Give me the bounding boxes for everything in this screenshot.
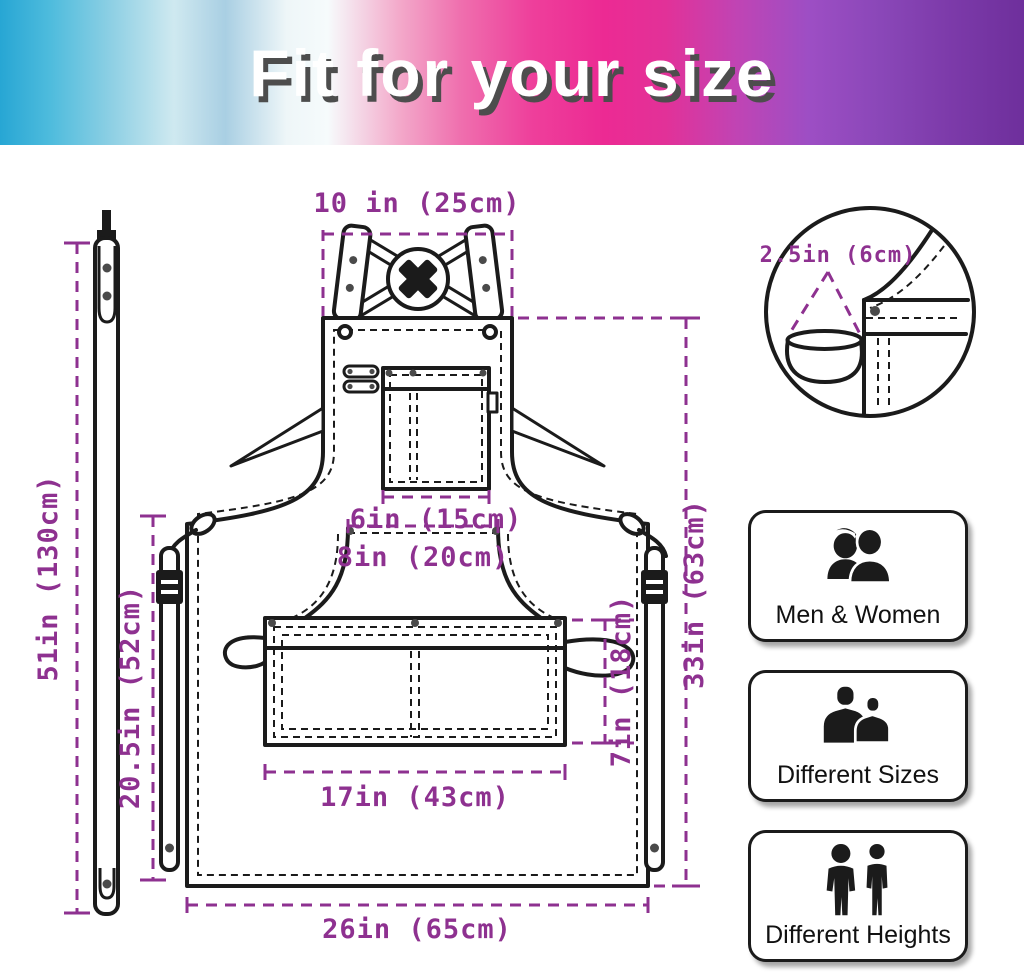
dim-bottom-width — [187, 897, 648, 913]
different-heights-icon — [810, 833, 906, 921]
left-strap-tail — [231, 408, 323, 466]
left-towel-loop — [225, 637, 265, 667]
right-strap-tail — [512, 408, 604, 466]
shoulder-cross-straps — [333, 225, 503, 322]
dim-center-panel-label: 8in (20cm) — [337, 542, 510, 573]
loop-detail-circle — [766, 208, 974, 416]
feature-badge-different-heights: Different Heights — [748, 830, 968, 962]
dim-waist-strap-length: 51in (130cm) — [33, 474, 64, 681]
feature-badge-men-women: Men & Women — [748, 510, 968, 642]
feature-label: Different Heights — [765, 921, 951, 959]
size-guide-infographic: Fit for your size 51in (130cm) — [0, 0, 1024, 973]
waist-strap-drawing — [64, 210, 118, 914]
dim-neck-strap-label: 10 in (25cm) — [313, 188, 520, 219]
dim-front-pocket-height-label: 7in (18cm) — [606, 595, 637, 768]
bib-grommet-right — [484, 326, 496, 338]
dim-body-length-label: 33in (63cm) — [679, 499, 710, 689]
different-sizes-icon — [810, 673, 906, 761]
men-women-icon — [810, 513, 906, 601]
bib-grommet-left — [339, 326, 351, 338]
feature-badge-different-sizes: Different Sizes — [748, 670, 968, 802]
dim-front-pocket-width-label: 17in (43cm) — [320, 782, 510, 813]
side-tie-left — [156, 548, 183, 870]
side-tie-right — [641, 548, 668, 870]
feature-label: Men & Women — [776, 601, 941, 639]
pocket-tag — [488, 393, 497, 412]
dim-lower-section-label: 20.5in (52cm) — [115, 585, 146, 809]
apron-measurement-diagram: 51in (130cm) 10 in (25c — [0, 0, 1024, 973]
dim-bottom-width-label: 26in (65cm) — [322, 914, 512, 945]
dim-loop-label: 2.5in (6cm) — [760, 243, 917, 268]
feature-label: Different Sizes — [777, 761, 939, 799]
